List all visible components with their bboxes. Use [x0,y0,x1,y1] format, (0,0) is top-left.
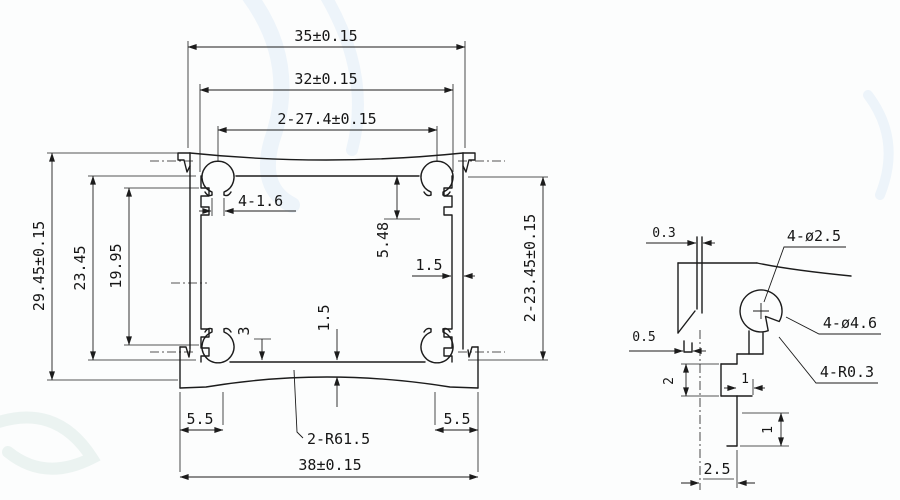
dim-label-boss-outer: 4-ø4.6 [823,314,877,332]
dim-label-step-height: 2 [662,377,677,385]
dim-label-height-overall: 29.45±0.15 [30,221,48,311]
dim-label-side-wall: 1.5 [415,256,442,274]
dim-label-groove-width: 0.3 [652,226,675,241]
dim-height-overall: 29.45±0.15 [30,153,178,380]
dim-label-slot-width: 4-1.6 [238,192,283,210]
dim-screw-hole: 4-ø2.5 [764,227,846,302]
screw-boss-bottom-right [421,328,453,362]
dim-label-width-inner: 32±0.15 [294,70,357,88]
dim-label-flange-right: 5.5 [443,410,470,428]
dim-boss-outer: 4-ø4.6 [786,314,881,334]
dim-notch-radius: 4-R0.3 [779,337,878,383]
dim-height-slot: 19.95 [107,188,199,345]
dim-label-lip-width: 0.5 [632,330,655,345]
dim-bottom-wall-thickness: 1.5 [315,304,337,407]
dim-boss-spacing: 2-27.4±0.15 [218,110,437,162]
dim-label-height-slot: 19.95 [107,243,125,288]
screw-boss-top-left [202,161,234,195]
drawing-svg: 35±0.15 32±0.15 2-27.4±0.15 29.45±0.15 2… [0,0,900,500]
dim-bottom-radius: 2-R61.5 [294,370,370,448]
dim-side-wall-thickness: 1.5 [412,256,475,276]
dim-label-boss-spacing: 2-27.4±0.15 [277,110,376,128]
dim-rib-offset: 3 [235,326,271,360]
dim-label-width-top: 35±0.15 [294,27,357,45]
dim-lip-width: 0.5 [629,330,706,351]
screw-boss-bottom-left [202,328,234,362]
dim-label-screw-hole: 4-ø2.5 [787,227,841,245]
dim-label-flange-left: 5.5 [186,410,213,428]
dim-base-width: 2.5 [681,450,755,488]
dim-step-height: 2 [662,364,719,396]
dim-label-base-width: 2.5 [703,460,730,478]
dim-height-side: 2-23.45±0.15 [468,177,548,360]
dim-label-notch-radius: 4-R0.3 [820,363,874,381]
dim-boss-depth: 5.48 [374,176,420,258]
dim-height-inner: 23.45 [71,176,196,360]
dim-slot-width: 4-1.6 [199,192,296,216]
dim-step-b: 1 [740,413,789,446]
technical-drawing-canvas: 35±0.15 32±0.15 2-27.4±0.15 29.45±0.15 2… [0,0,900,500]
dim-label-width-bottom: 38±0.15 [298,456,361,474]
dim-flange-right: 5.5 [435,392,478,430]
watermark [0,0,889,469]
dim-label-bottom-wall: 1.5 [315,304,333,331]
screw-boss-top-right [421,161,453,195]
dim-label-rib-offset: 3 [235,326,253,335]
dim-flange-left: 5.5 [180,392,223,430]
dim-label-step-a: 1 [741,372,749,387]
dim-groove-width: 0.3 [646,226,715,243]
dim-step-a: 1 [724,372,765,395]
dim-label-height-inner: 23.45 [71,245,89,290]
dim-label-bottom-radius: 2-R61.5 [307,430,370,448]
dim-label-step-b: 1 [761,426,776,434]
dim-label-height-side: 2-23.45±0.15 [521,214,539,322]
dim-label-boss-depth: 5.48 [374,222,392,258]
